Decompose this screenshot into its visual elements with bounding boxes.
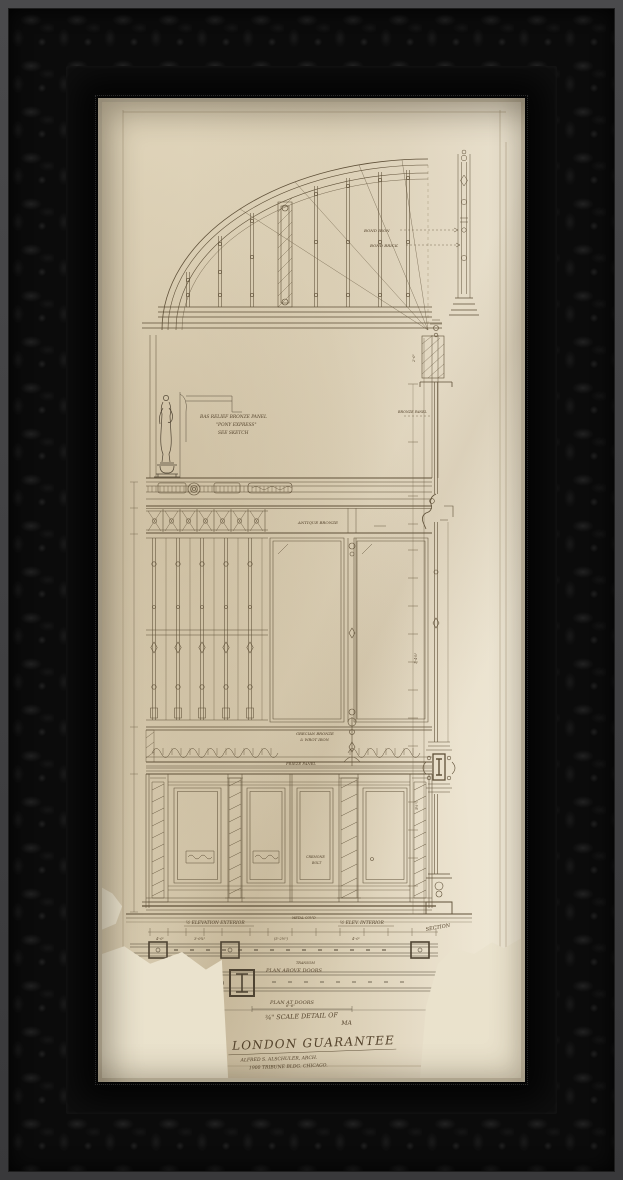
label-address: 1900 TRIBUNE BLDG. CHICAGO. xyxy=(249,1062,329,1071)
label-bas-relief-2: "PONY EXPRESS" xyxy=(216,423,256,428)
label-plan-dim: 6'-6" xyxy=(286,1003,295,1008)
fanlight-arch-drawing xyxy=(142,159,442,478)
cornice-band xyxy=(146,478,432,506)
architectural-drawing: BAS RELIEF BRONZE PANEL "PONY EXPRESS" S… xyxy=(102,102,521,1078)
label-elev-interior: ½ ELEV. INTERIOR xyxy=(340,920,385,926)
window-mullions xyxy=(146,538,428,722)
label-bond-iron: BOND IRON xyxy=(363,228,390,233)
label-architect: ALFRED S. ALSCHULER, ARCH. xyxy=(239,1055,318,1064)
annotations: BAS RELIEF BRONZE PANEL "PONY EXPRESS" S… xyxy=(155,228,451,1072)
label-scale-line2: MA xyxy=(340,1020,352,1027)
framed-architectural-drawing-photo: { "artwork": { "type": "architectural dr… xyxy=(0,0,623,1180)
label-cremone-2: BOLT xyxy=(311,861,322,865)
drawing-paper: BAS RELIEF BRONZE PANEL "PONY EXPRESS" S… xyxy=(102,102,521,1078)
label-bronze-panel: BRONZE PANEL xyxy=(397,410,428,414)
label-grecian-bronze-2: & WROT IRON xyxy=(300,737,330,742)
baluster-section xyxy=(400,150,479,315)
label-plan-above-doors: PLAN ABOVE DOORS xyxy=(265,968,322,974)
label-antique-bronze: ANTIQUE BRONZE xyxy=(297,520,338,525)
dim-0: 4'-0" xyxy=(155,937,164,941)
label-frieze-panel: FRIEZE PANEL xyxy=(285,761,316,766)
label-metal-covd: METAL COV'D xyxy=(291,916,316,920)
dim-2: (5'-2½") xyxy=(274,936,289,941)
floor-lines xyxy=(126,482,472,936)
grille-band xyxy=(146,508,432,533)
label-bas-relief-3: SEE SKETCH xyxy=(218,431,249,436)
dim-4: 1'-4⅛" xyxy=(414,652,418,664)
label-bas-relief-1: BAS RELIEF BRONZE PANEL xyxy=(199,415,267,420)
label-transom: TRANSOM xyxy=(296,961,315,965)
dim-1: 3'-0¾" xyxy=(194,936,206,941)
label-section: SECTION xyxy=(425,923,451,933)
dim-3: 4'-0" xyxy=(351,937,360,941)
label-grecian-bronze-1: GRECIAN BRONZE xyxy=(296,731,334,736)
label-scale-line1: ¾" SCALE DETAIL OF xyxy=(265,1011,339,1022)
frieze-band xyxy=(146,717,432,766)
label-cremone-1: CREMONE xyxy=(306,855,325,859)
dim-rough: 2'-0" xyxy=(412,354,416,363)
label-bond-brick: BOND BRICK xyxy=(369,243,399,248)
dim-5: 5½" xyxy=(414,803,419,810)
doors-elevation xyxy=(142,768,436,910)
label-elev-exterior: ½ ELEVATION EXTERIOR xyxy=(186,920,245,926)
dimension-ticks xyxy=(408,384,418,914)
